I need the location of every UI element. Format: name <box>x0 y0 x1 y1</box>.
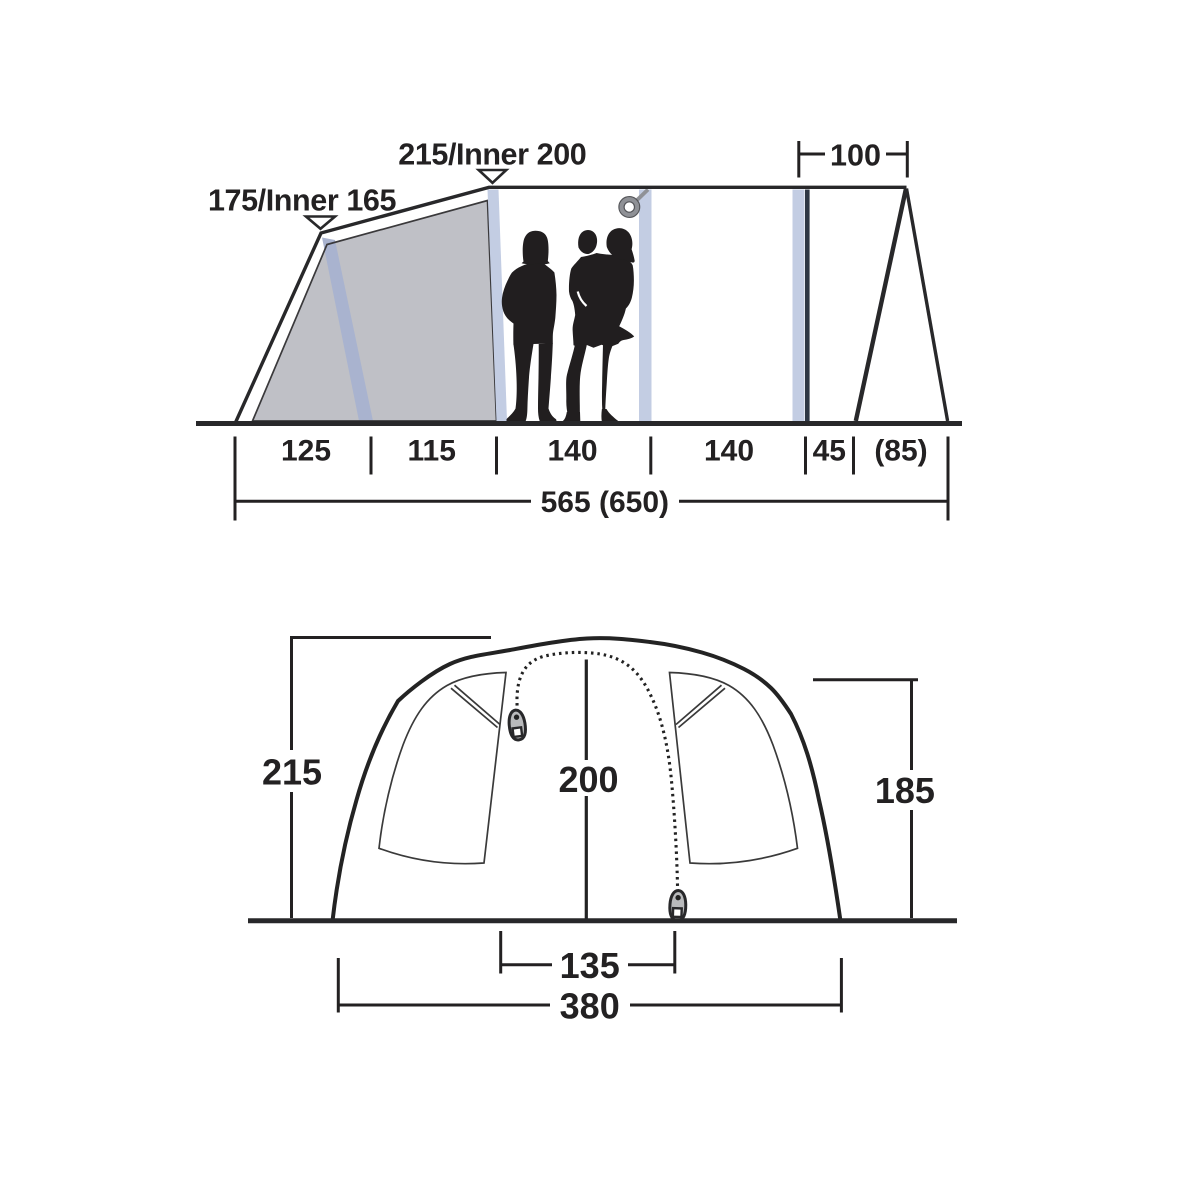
svg-text:380: 380 <box>560 986 620 1027</box>
svg-text:100: 100 <box>830 139 881 173</box>
svg-text:215/Inner 200: 215/Inner 200 <box>398 138 586 172</box>
svg-text:(85): (85) <box>874 435 927 468</box>
svg-text:45: 45 <box>813 435 846 468</box>
svg-text:200: 200 <box>558 759 618 800</box>
svg-text:140: 140 <box>547 435 597 468</box>
svg-text:135: 135 <box>560 945 620 986</box>
svg-text:115: 115 <box>407 435 455 468</box>
svg-text:185: 185 <box>875 770 935 811</box>
svg-text:125: 125 <box>281 435 331 468</box>
svg-text:215: 215 <box>262 752 322 793</box>
svg-text:565 (650): 565 (650) <box>541 486 669 519</box>
svg-text:140: 140 <box>704 435 754 468</box>
svg-text:175/Inner 165: 175/Inner 165 <box>208 183 397 217</box>
